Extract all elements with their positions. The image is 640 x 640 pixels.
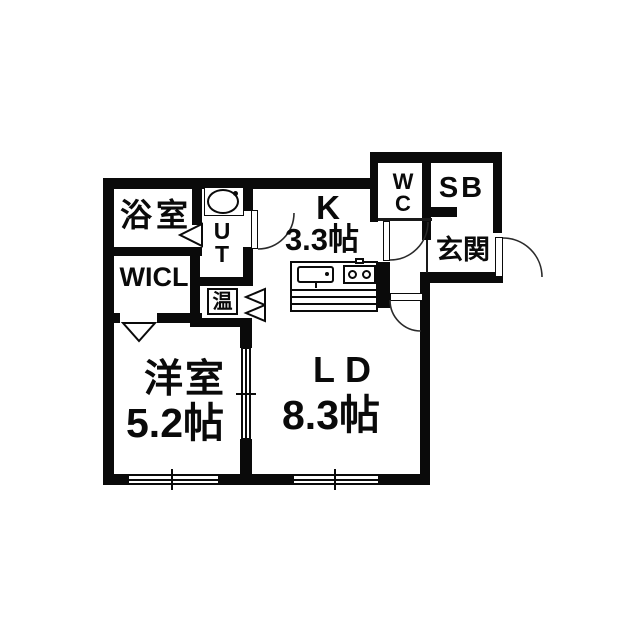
entrance-door-arc-icon — [503, 238, 542, 277]
wc-door-arc-icon — [390, 222, 428, 260]
heater-bifold-triangle-icon — [246, 289, 265, 305]
wc-label-w: W — [393, 171, 414, 193]
heater-bifold-triangle-icon — [246, 305, 265, 321]
ld-size: 8.3帖 — [270, 394, 392, 436]
ld-door-arc-icon — [390, 300, 421, 331]
western-room-size: 5.2帖 — [123, 402, 227, 444]
water-heater-label: 温 — [207, 289, 238, 314]
kitchen-label: K — [310, 191, 346, 224]
bathroom-label: 浴室 — [111, 198, 201, 232]
door-symbols — [0, 0, 640, 640]
entrance-label: 玄関 — [434, 236, 492, 264]
wc-label-c: C — [395, 193, 411, 215]
ut-label-t: T — [215, 243, 229, 266]
wicl-door-triangle-icon — [123, 323, 155, 341]
western-room-label: 洋室 — [140, 359, 230, 399]
shoe-box-label: SB — [436, 173, 488, 203]
ld-label: LD — [303, 351, 391, 389]
kitchen-size: 3.3帖 — [280, 223, 364, 256]
ut-label-u: U — [214, 220, 231, 243]
wicl-label: WICL — [112, 263, 196, 291]
floor-plan: 浴室 WICL U T 温 K 3.3帖 W C SB 玄関 洋室 5.2帖 L… — [0, 0, 640, 640]
